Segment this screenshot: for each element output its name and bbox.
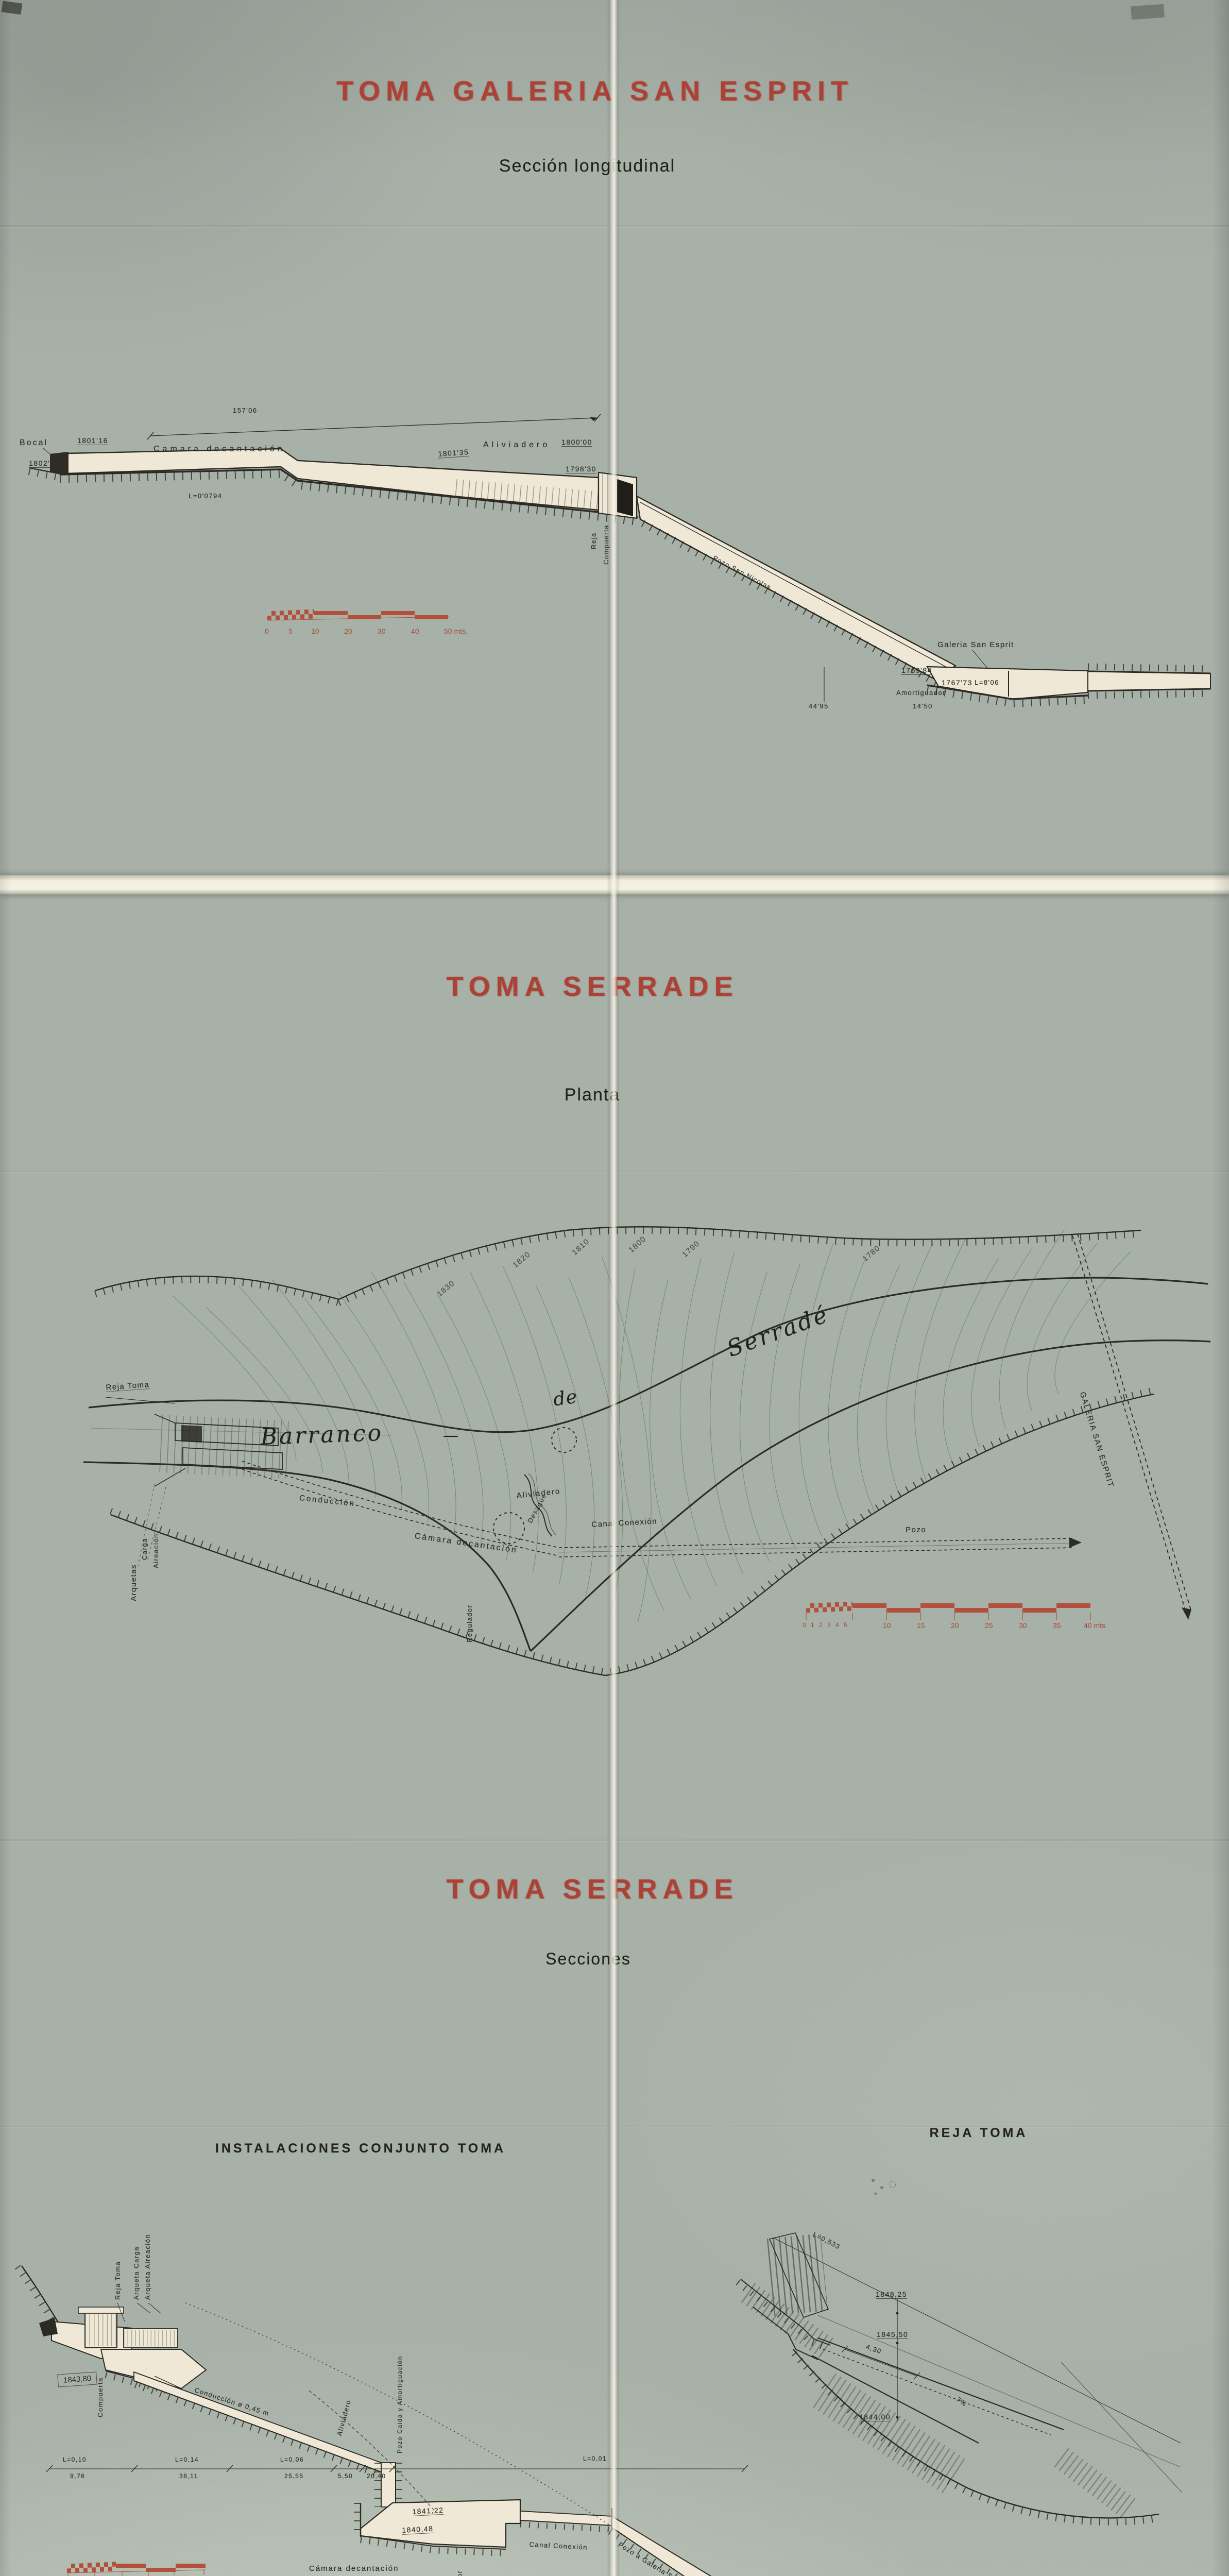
longitudinal-section-drawing bbox=[29, 414, 1210, 704]
dim-l010: L=0,10 bbox=[63, 2456, 87, 2463]
stream-name-de: de bbox=[552, 1387, 579, 1409]
heading-instalaciones-conjunto-toma: INSTALACIONES CONJUNTO TOMA bbox=[215, 2142, 506, 2155]
stream-name-barranco: Barranco bbox=[260, 1422, 384, 1449]
scale2-tick: 15 bbox=[917, 1622, 925, 1629]
label-slope-00794: L=0'0794 bbox=[189, 493, 222, 499]
label-compuerta: Compuerta bbox=[603, 524, 609, 565]
contour-line bbox=[770, 1263, 800, 1549]
contour-line bbox=[238, 1286, 349, 1485]
contour-line bbox=[915, 1240, 966, 1483]
label-camara-section: Cámara decantación bbox=[309, 2565, 399, 2572]
scale1-tick: 0 bbox=[265, 628, 269, 635]
elevation-1769-84: 1769'84 bbox=[901, 667, 932, 675]
scale2-tick: 35 bbox=[1053, 1622, 1061, 1629]
label-pozo-caida-amortiguacion: Pozo Caida y Amortiguación bbox=[397, 2355, 403, 2453]
dim-2555: 25,55 bbox=[284, 2473, 304, 2479]
dim-14-50: 14'50 bbox=[913, 703, 933, 709]
elevation-box-1843-80: 1843,80 bbox=[57, 2371, 97, 2387]
label-arquetas: Arquetas bbox=[130, 1564, 138, 1601]
contour-line bbox=[1055, 1251, 1131, 1394]
contour-line bbox=[404, 1282, 483, 1548]
contour-line bbox=[1027, 1243, 1098, 1411]
contour-line bbox=[799, 1243, 833, 1536]
scale2-tick: 25 bbox=[985, 1622, 993, 1629]
scale1-tick: 10 bbox=[311, 628, 319, 635]
label-reja: Reja bbox=[590, 532, 597, 549]
dim-2040: 20,40 bbox=[367, 2473, 386, 2479]
contour-line bbox=[536, 1285, 594, 1597]
dim-3811: 38,11 bbox=[179, 2473, 198, 2479]
scale-bar-2 bbox=[806, 1603, 1090, 1620]
elevation-1845-50: 1845,50 bbox=[877, 2331, 908, 2339]
contour-line bbox=[971, 1249, 1032, 1447]
dim-976: 9,76 bbox=[70, 2473, 85, 2479]
label-pozo: Pozo bbox=[906, 1526, 926, 1534]
scanned-drawing-sheet: TOMA GALERIA SAN ESPRIT Sección longitud… bbox=[0, 0, 1229, 2576]
section2-title: TOMA SERRADE bbox=[446, 973, 738, 1001]
heading-reja-toma: REJA TOMA bbox=[930, 2127, 1028, 2140]
contour-line bbox=[470, 1272, 538, 1573]
section2-subtitle: Planta bbox=[565, 1086, 620, 1104]
label-camara-decantacion: Camara decantación bbox=[153, 445, 285, 453]
elevation-1798-30: 1798'30 bbox=[566, 465, 596, 473]
contour-line bbox=[999, 1230, 1065, 1429]
label-compuerta-section: Compuerta bbox=[97, 2377, 104, 2417]
dim-l006: L=0,06 bbox=[280, 2456, 304, 2463]
label-regulador-plan: Regulador bbox=[466, 1605, 473, 1643]
section3-subtitle: Secciones bbox=[545, 1951, 631, 1967]
scale1-tick: 50 mts. bbox=[444, 628, 468, 635]
scale2-tick: 30 bbox=[1019, 1622, 1027, 1629]
scale1-tick: 30 bbox=[378, 628, 386, 635]
contour-line bbox=[602, 1257, 651, 1622]
dim-l001: L=0,01 bbox=[583, 2455, 607, 2462]
contour-line bbox=[680, 1258, 716, 1586]
reja-toma-drawing bbox=[738, 2179, 1182, 2522]
contour-line bbox=[886, 1244, 932, 1499]
label-galeria-san-esprit: Galeria San Esprit bbox=[937, 641, 1014, 649]
contour-line bbox=[271, 1280, 375, 1498]
elevation-1802-50: 1802'50 bbox=[29, 460, 60, 468]
elevation-1800-00: 1800'00 bbox=[561, 438, 592, 447]
contour-line bbox=[338, 1292, 429, 1523]
elevation-1840-48: 1840,48 bbox=[402, 2525, 434, 2535]
label-aliviadero: Aliviadero bbox=[483, 441, 550, 449]
label-arqueta-carga: Arqueta Carga bbox=[133, 2246, 140, 2300]
contour-line bbox=[620, 1269, 664, 1611]
contour-line bbox=[569, 1277, 623, 1609]
section1-title: TOMA GALERIA SAN ESPRIT bbox=[336, 77, 854, 105]
scale2-tick: 10 bbox=[883, 1622, 891, 1629]
scale1-tick: 5 bbox=[288, 628, 293, 635]
scale2-tick: 40 mts bbox=[1084, 1622, 1105, 1629]
elevation-1801-16: 1801'16 bbox=[77, 437, 108, 445]
dim-slope-l806: L=8'06 bbox=[975, 679, 999, 686]
label-amortiguador: Amortiguador bbox=[896, 689, 946, 696]
scale2-tick: 20 bbox=[951, 1622, 959, 1629]
elevation-1848-25: 1848,25 bbox=[876, 2291, 907, 2299]
elevation-1767-73: 1767'73 bbox=[942, 679, 972, 687]
label-bocal: Bocal bbox=[20, 439, 48, 447]
dim-550: 5,50 bbox=[338, 2473, 353, 2479]
elevation-1844-00: 1844,00 bbox=[859, 2413, 891, 2421]
section3-title: TOMA SERRADE bbox=[446, 1875, 738, 1903]
dim-44-95: 44'95 bbox=[809, 703, 829, 709]
conjunto-toma-drawing bbox=[18, 2266, 758, 2576]
contour-line bbox=[740, 1272, 770, 1561]
scale2-cluster: 0 1 2 3 4 5 bbox=[803, 1622, 849, 1628]
scale1-tick: 40 bbox=[411, 628, 419, 635]
label-regulador-section: Regulador bbox=[456, 2570, 463, 2576]
label-aireacion: Aireación bbox=[152, 1533, 159, 1568]
contour-line bbox=[710, 1253, 743, 1574]
white-fold-band bbox=[0, 875, 1229, 894]
section1-subtitle: Sección longitudinal bbox=[499, 157, 675, 175]
scale-bar-1 bbox=[267, 611, 449, 620]
line-art bbox=[0, 0, 1229, 2576]
dim-157-06: 157'06 bbox=[233, 407, 258, 414]
contour-line bbox=[503, 1266, 566, 1585]
label-reja-toma-section: Reja Toma bbox=[114, 2261, 121, 2300]
dim-l014: L=0,14 bbox=[175, 2456, 199, 2463]
contour-line bbox=[943, 1258, 999, 1465]
scale1-tick: 20 bbox=[344, 628, 352, 635]
stream-name-dash: — bbox=[443, 1428, 459, 1444]
elevation-1841-22: 1841,22 bbox=[412, 2506, 444, 2516]
scale-bar-3a bbox=[67, 2564, 206, 2576]
contour-line bbox=[828, 1256, 866, 1524]
label-arqueta-aireacion: Arqueta Aireación bbox=[144, 2234, 151, 2300]
label-carga: Carga bbox=[141, 1538, 148, 1560]
